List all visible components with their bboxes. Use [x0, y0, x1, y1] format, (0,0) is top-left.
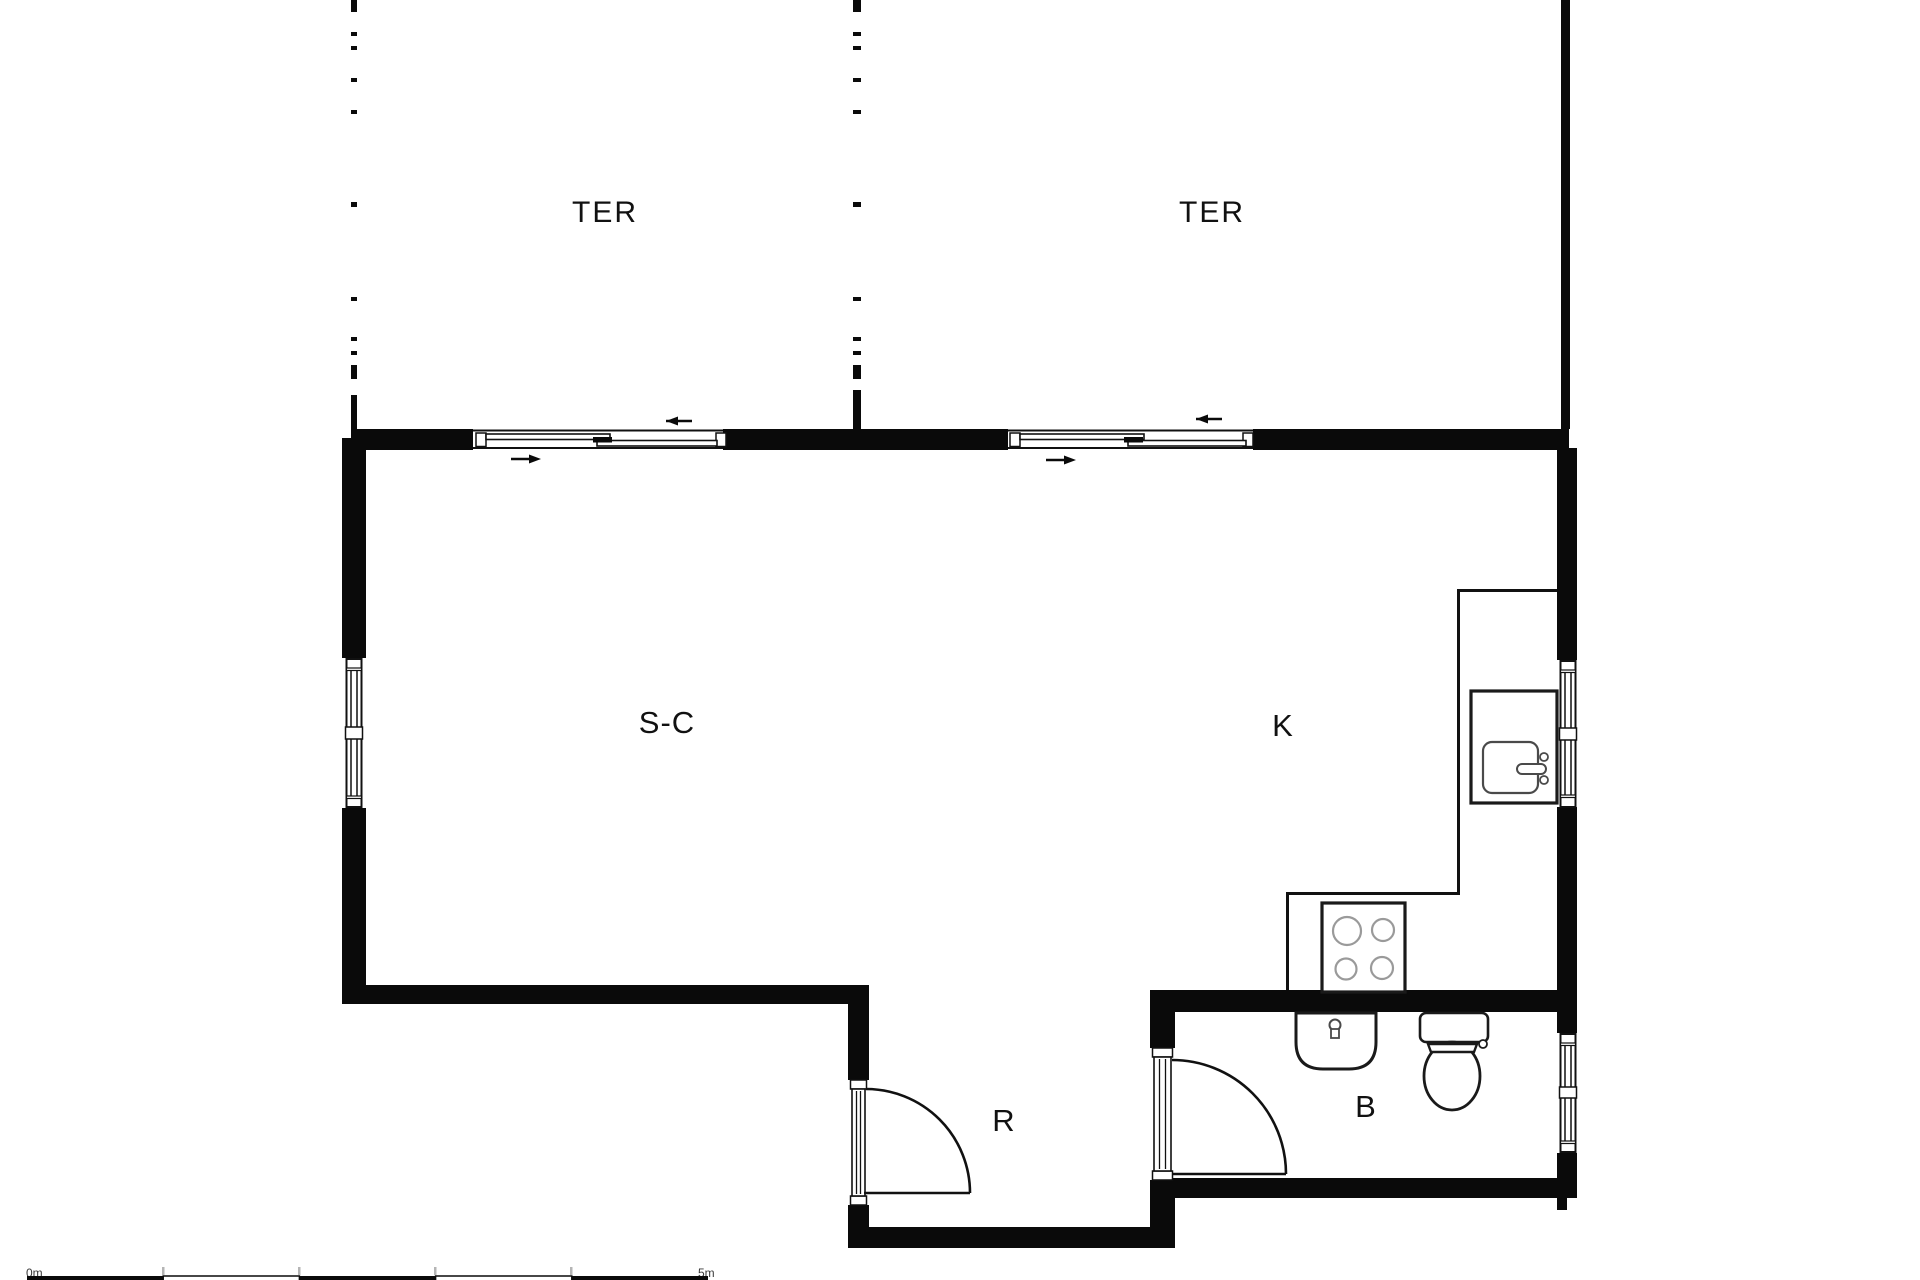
scale-bar: 0m 5m	[26, 1266, 715, 1280]
bathroom-sink	[1296, 1013, 1376, 1069]
burner	[1371, 957, 1393, 979]
room-label-living: S-C	[639, 705, 695, 740]
burner	[1336, 959, 1357, 980]
sliding-panel-lower	[1128, 441, 1246, 447]
room-label-hall: R	[992, 1103, 1015, 1138]
room-label-bathroom: B	[1355, 1089, 1377, 1124]
sliding-door-left	[473, 417, 726, 464]
sliding-panel-overlap	[1124, 437, 1143, 443]
hinged-door-bathroom	[1153, 1048, 1287, 1180]
wall-left-lower	[342, 808, 366, 1004]
wall-top-seg2	[723, 429, 1008, 450]
tap-handle	[1540, 776, 1548, 784]
room-label-terrace-right: TER	[1179, 196, 1245, 229]
wall-top-seg1	[351, 429, 473, 450]
scale-tick	[162, 1267, 165, 1275]
slide-arrow-right-icon	[511, 455, 541, 464]
terrace-boundaries	[351, 0, 1570, 429]
burner	[1333, 917, 1361, 945]
stove	[1322, 903, 1405, 992]
scale-tick	[570, 1267, 573, 1275]
wall-left-upper	[342, 438, 366, 658]
faucet-icon	[1517, 764, 1546, 774]
kitchen-sink	[1471, 691, 1557, 803]
wall-right-upper	[1557, 448, 1577, 660]
terrace-wall-right	[1561, 0, 1570, 429]
window-left-wall	[346, 659, 363, 807]
door-swing-arc	[866, 1089, 970, 1193]
door-swing-arc	[1172, 1060, 1286, 1174]
burner	[1372, 919, 1394, 941]
floor-plan-canvas: TER TER S-C K R B 0m 5m	[0, 0, 1920, 1280]
terrace-divider-middle-solid	[853, 390, 861, 429]
door-leaf-closed	[852, 1089, 865, 1196]
walls	[342, 429, 1577, 1248]
window-bathroom	[1560, 1034, 1577, 1152]
wall-top-seg3	[1253, 429, 1569, 450]
sliding-panel-lower	[597, 441, 717, 447]
scale-tick	[298, 1267, 301, 1275]
wall-hall-left-upper	[848, 985, 869, 1080]
wall-living-bottom	[342, 985, 869, 1004]
scale-tick	[434, 1267, 437, 1275]
slide-arrow-left-icon	[666, 417, 692, 426]
sliding-panel-upper	[486, 434, 610, 440]
toilet-seat-hinge	[1428, 1044, 1477, 1052]
terrace-divider-left-solid	[351, 395, 357, 429]
wall-right-corner-nub	[1557, 1198, 1567, 1210]
hinged-door-hall	[851, 1080, 971, 1205]
tap-handle	[1540, 753, 1548, 761]
toilet	[1420, 1013, 1488, 1110]
room-label-terrace-left: TER	[572, 196, 638, 229]
room-label-kitchen: K	[1272, 708, 1294, 743]
slide-arrow-right-icon	[1046, 456, 1076, 465]
scale-stripes	[27, 1276, 708, 1280]
toilet-tank	[1420, 1013, 1488, 1042]
faucet-icon	[1331, 1029, 1339, 1038]
slide-arrow-left-icon	[1196, 415, 1222, 424]
window-kitchen	[1560, 661, 1577, 807]
door-leaf-closed	[1154, 1057, 1171, 1171]
flush-button	[1479, 1040, 1487, 1048]
wall-hall-bottom	[848, 1227, 1175, 1248]
wall-bath-bottom	[1157, 1178, 1577, 1198]
sliding-panel-overlap	[593, 437, 612, 443]
sliding-door-right	[1008, 415, 1253, 465]
